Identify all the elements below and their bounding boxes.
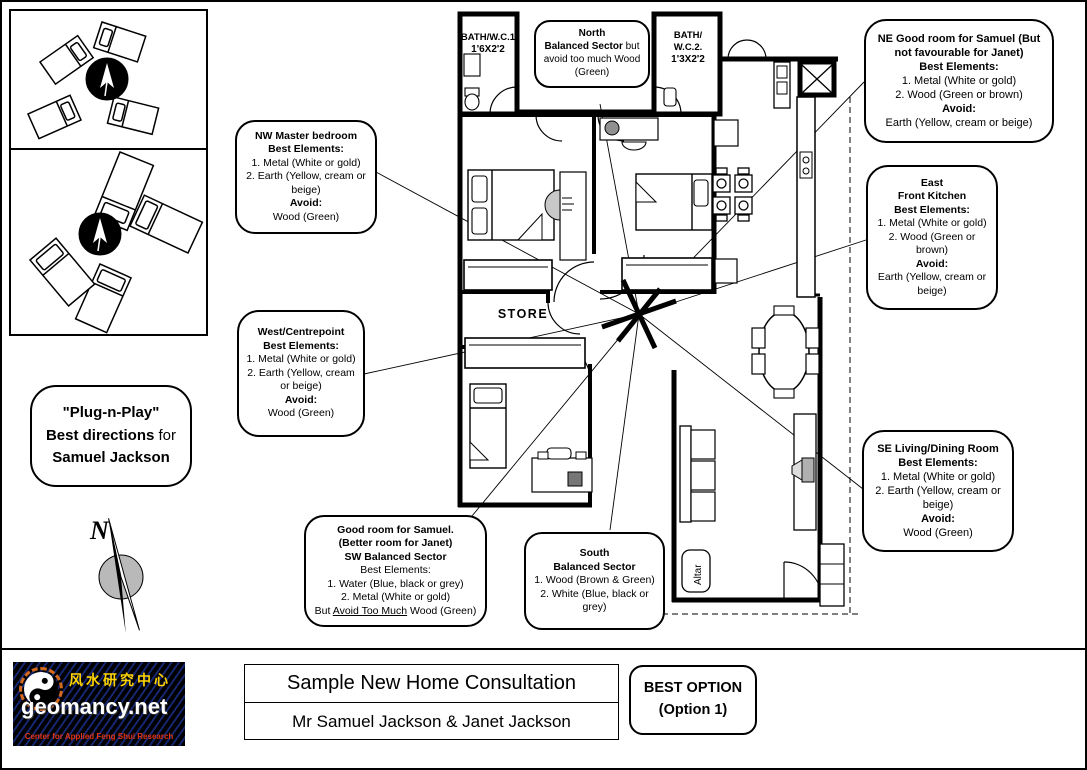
callout-line: (Better room for Janet) (312, 537, 479, 550)
callout-line: 1. Metal (White or gold) (874, 217, 990, 230)
callout-line: SW Balanced Sector (312, 551, 479, 564)
footer-divider (2, 648, 1087, 650)
callout-line: 2. Wood (Green or brown) (872, 88, 1046, 102)
bath1-label-line1: BATH/W.C.1 (461, 32, 516, 43)
callout-line: Balanced Sector (532, 561, 657, 574)
callout-line: NE Good room for Samuel (But (872, 32, 1046, 46)
best-option-line2: (Option 1) (631, 700, 755, 722)
furniture (464, 54, 844, 606)
callout-line: not favourable for Janet) (872, 46, 1046, 60)
compass-arrow-icon (86, 58, 128, 100)
callout-line: 1. Metal (White or gold) (243, 157, 369, 170)
callout-plug-n-play: "Plug-n-Play" Best directions for Samuel… (30, 385, 192, 487)
altar-label: Altar (693, 564, 704, 585)
callout-line: SE Living/Dining Room (870, 442, 1006, 456)
callout-line: Avoid: (874, 258, 990, 271)
callout-line: Front Kitchen (874, 190, 990, 203)
callout-line: Earth (Yellow, cream or beige) (872, 116, 1046, 130)
callout-line: 2. White (Blue, black or grey) (532, 588, 657, 615)
callout-line: Best Elements: (870, 456, 1006, 470)
callout-line: 2. Wood (Green or brown) (874, 231, 990, 258)
store-label: STORE (498, 307, 548, 321)
bath2-label-line2: W.C.2. (674, 42, 703, 53)
callout-line: Best Elements: (312, 564, 479, 577)
callout-line: 1. Water (Blue, black or grey) (312, 578, 479, 591)
callout-line: Good room for Samuel. (312, 524, 479, 537)
callout-line: Samuel Jackson (38, 447, 184, 470)
geomancy-logo: 风水研究中心 geomancy.net Center for Applied F… (13, 662, 185, 746)
callout-line: North (542, 28, 642, 41)
title-block: Sample New Home Consultation Mr Samuel J… (244, 664, 619, 740)
callout-line: avoid too much Wood (542, 54, 642, 67)
callout-line: Wood (Green) (870, 526, 1006, 540)
callout-east: East Front Kitchen Best Elements: 1. Met… (866, 165, 998, 310)
callout-line: 2. Earth (Yellow, cream or beige) (870, 484, 1006, 512)
bath1-label-line2: 1'6X2'2 (471, 44, 505, 55)
callout-line: 2. Earth (Yellow, cream or beige) (245, 367, 357, 394)
callout-line: West/Centrepoint (245, 326, 357, 339)
callout-line: Best directions for (38, 425, 184, 448)
callout-line: (Green) (542, 67, 642, 80)
callout-line: Avoid: (243, 197, 369, 210)
callout-line: Best Elements: (874, 204, 990, 217)
callout-line: 1. Metal (White or gold) (870, 470, 1006, 484)
bath2-label-line3: 1'3X2'2 (671, 54, 705, 65)
callout-line: Wood (Green) (245, 407, 357, 420)
callout-line: South (532, 547, 657, 560)
logo-chinese-text: 风水研究中心 (69, 670, 171, 690)
project-title: Sample New Home Consultation (245, 665, 618, 703)
logo-tagline: Center for Applied Feng Shui Research (13, 732, 185, 741)
callout-line: East (874, 177, 990, 190)
callout-sw: Good room for Samuel. (Better room for J… (304, 515, 487, 627)
compass-arrow-icon (79, 213, 121, 255)
callout-line: Wood (Green) (243, 211, 369, 224)
callout-line: "Plug-n-Play" (38, 402, 184, 425)
bed-direction-panel-bottom (10, 149, 207, 335)
callout-line: 2. Metal (White or gold) (312, 591, 479, 604)
callout-line: Best Elements: (243, 143, 369, 156)
callout-line: 1. Wood (Brown & Green) (532, 574, 657, 587)
callout-line: Avoid: (872, 102, 1046, 116)
callout-line: Earth (Yellow, cream or beige) (874, 271, 990, 298)
bath2-label-line1: BATH/ (674, 30, 703, 41)
client-names: Mr Samuel Jackson & Janet Jackson (245, 703, 618, 740)
callout-line: NW Master bedroom (243, 130, 369, 143)
callout-line: But Avoid Too Much Wood (Green) (312, 605, 479, 618)
callout-ne: NE Good room for Samuel (But not favoura… (864, 19, 1054, 143)
callout-south: South Balanced Sector 1. Wood (Brown & G… (524, 532, 665, 630)
callout-nw: NW Master bedroom Best Elements: 1. Meta… (235, 120, 377, 234)
callout-line: Best Elements: (872, 60, 1046, 74)
consultation-sheet: N (0, 0, 1087, 770)
callout-line: 2. Earth (Yellow, cream or beige) (243, 170, 369, 197)
callout-se: SE Living/Dining Room Best Elements: 1. … (862, 430, 1014, 552)
callout-line: 1. Metal (White or gold) (872, 74, 1046, 88)
logo-domain-text: geomancy.net (21, 694, 167, 720)
compass-n-label: N (89, 516, 110, 545)
callout-line: Avoid: (870, 512, 1006, 526)
callout-line: Avoid: (245, 394, 357, 407)
callout-line: 1. Metal (White or gold) (245, 353, 357, 366)
bed-direction-panel-top (10, 10, 207, 149)
callout-line: Best Elements: (245, 340, 357, 353)
best-option-badge: BEST OPTION (Option 1) (629, 665, 757, 735)
callout-west: West/Centrepoint Best Elements: 1. Metal… (237, 310, 365, 437)
north-needle-icon: N (89, 516, 143, 633)
best-option-line1: BEST OPTION (631, 678, 755, 700)
callout-line: Balanced Sector but (542, 41, 642, 54)
callout-north: North Balanced Sector but avoid too much… (534, 20, 650, 88)
